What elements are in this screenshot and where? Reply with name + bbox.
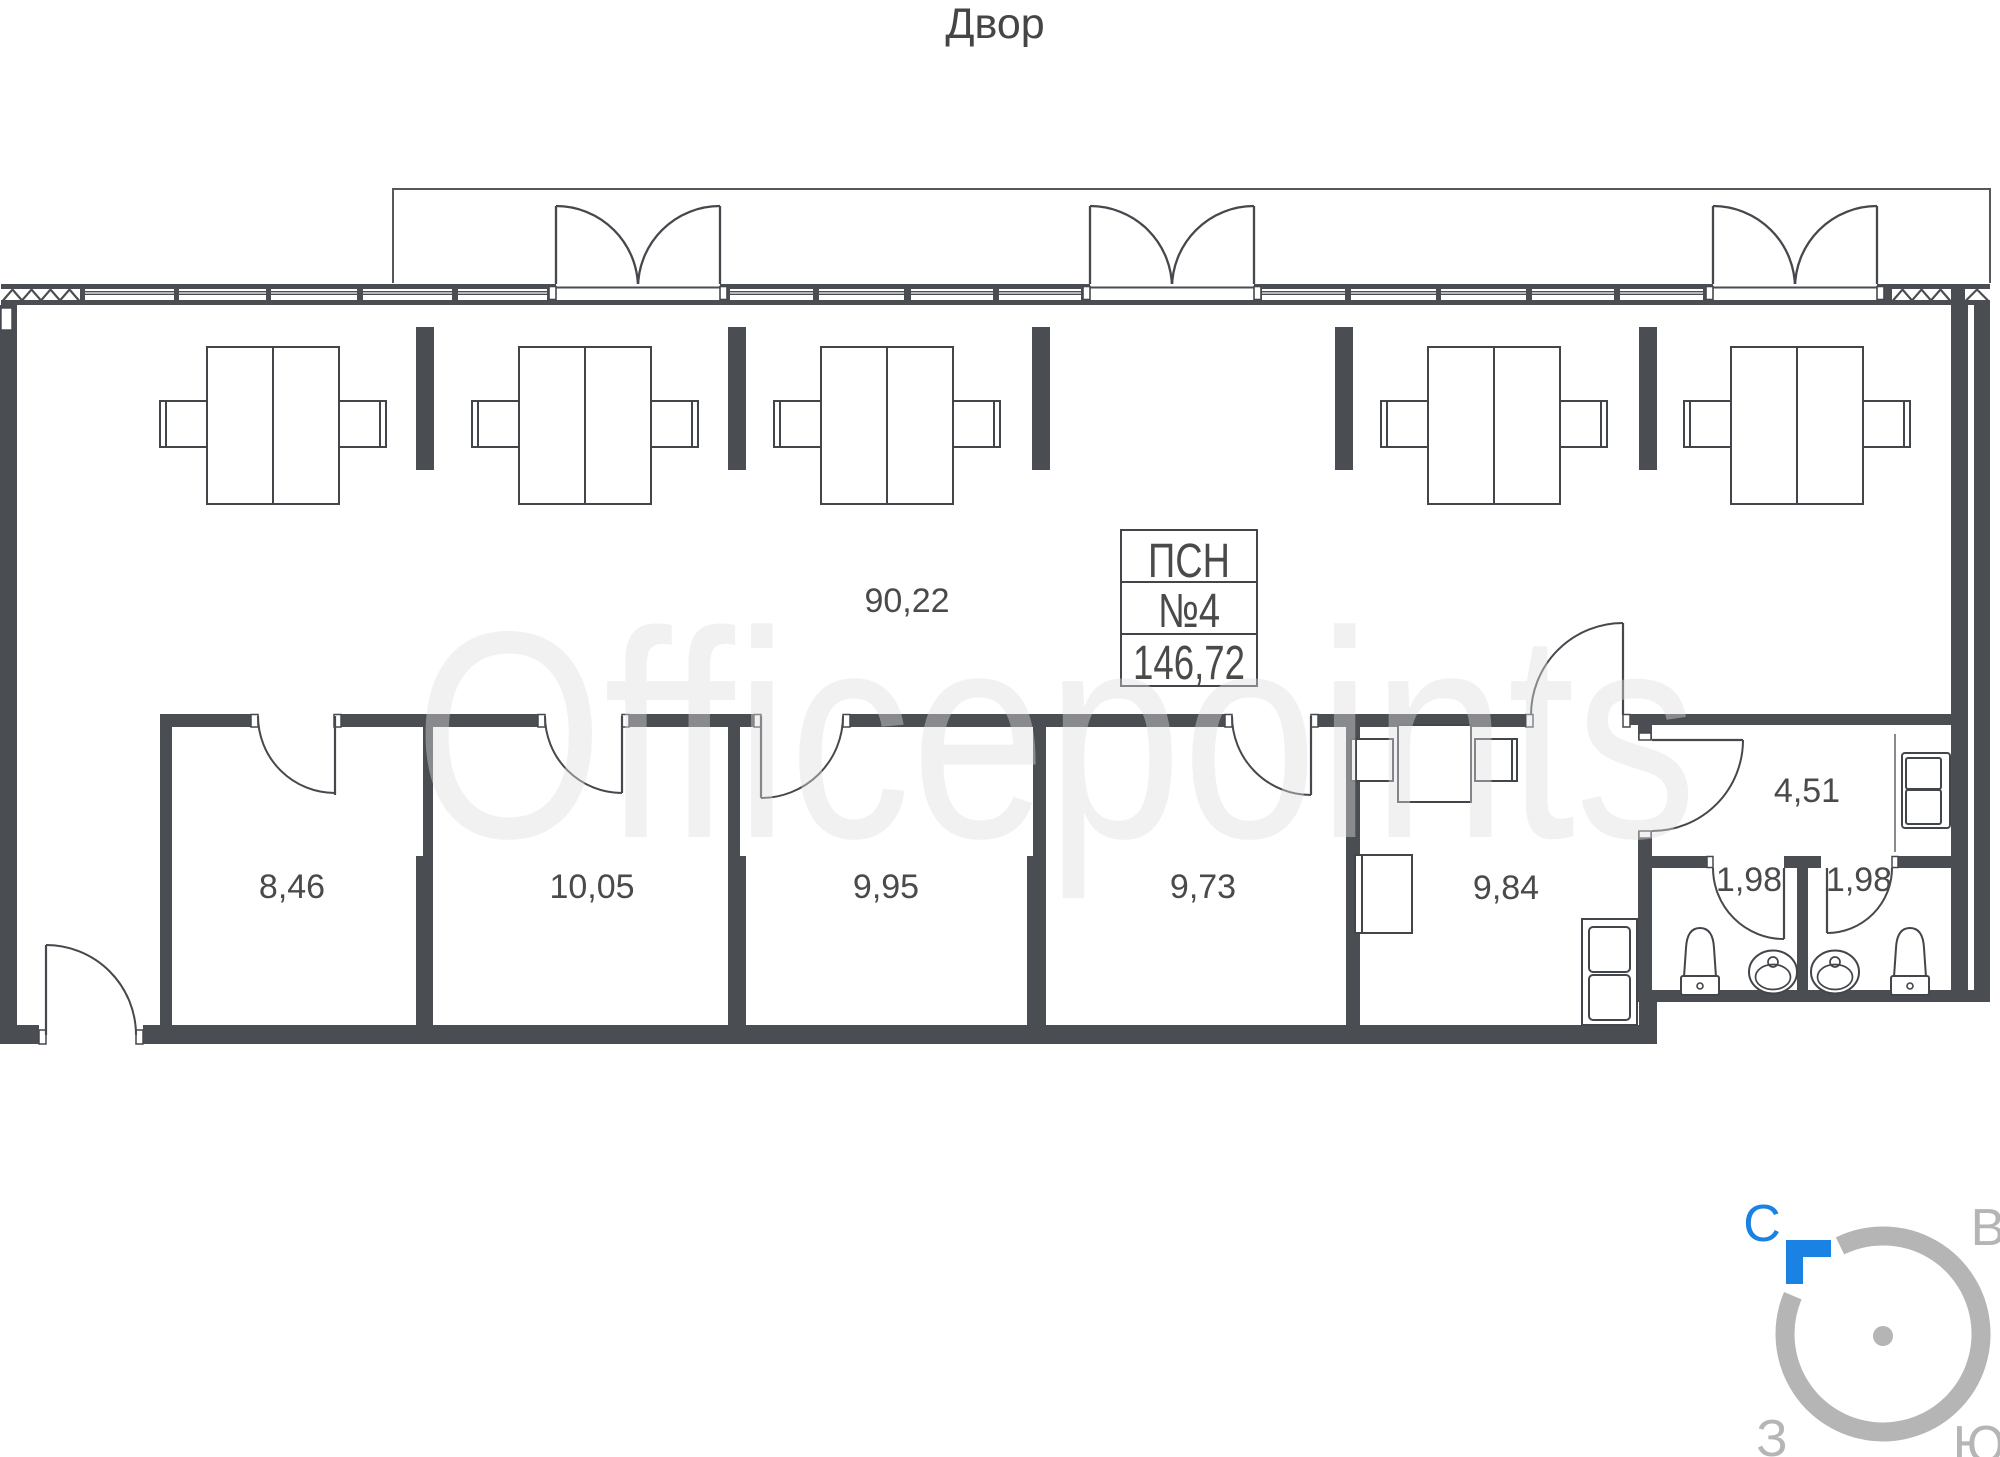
svg-text:1,98: 1,98 (1826, 861, 1892, 899)
svg-text:В: В (1971, 1199, 2000, 1257)
svg-text:Officepoints: Officepoints (414, 570, 1697, 902)
svg-text:С: С (1743, 1195, 1781, 1253)
svg-text:8,46: 8,46 (259, 868, 325, 906)
svg-text:1,98: 1,98 (1716, 861, 1782, 899)
svg-text:4,51: 4,51 (1774, 772, 1840, 810)
svg-text:Двор: Двор (945, 0, 1044, 48)
svg-text:З: З (1756, 1410, 1787, 1457)
svg-text:Ю: Ю (1953, 1416, 2000, 1457)
